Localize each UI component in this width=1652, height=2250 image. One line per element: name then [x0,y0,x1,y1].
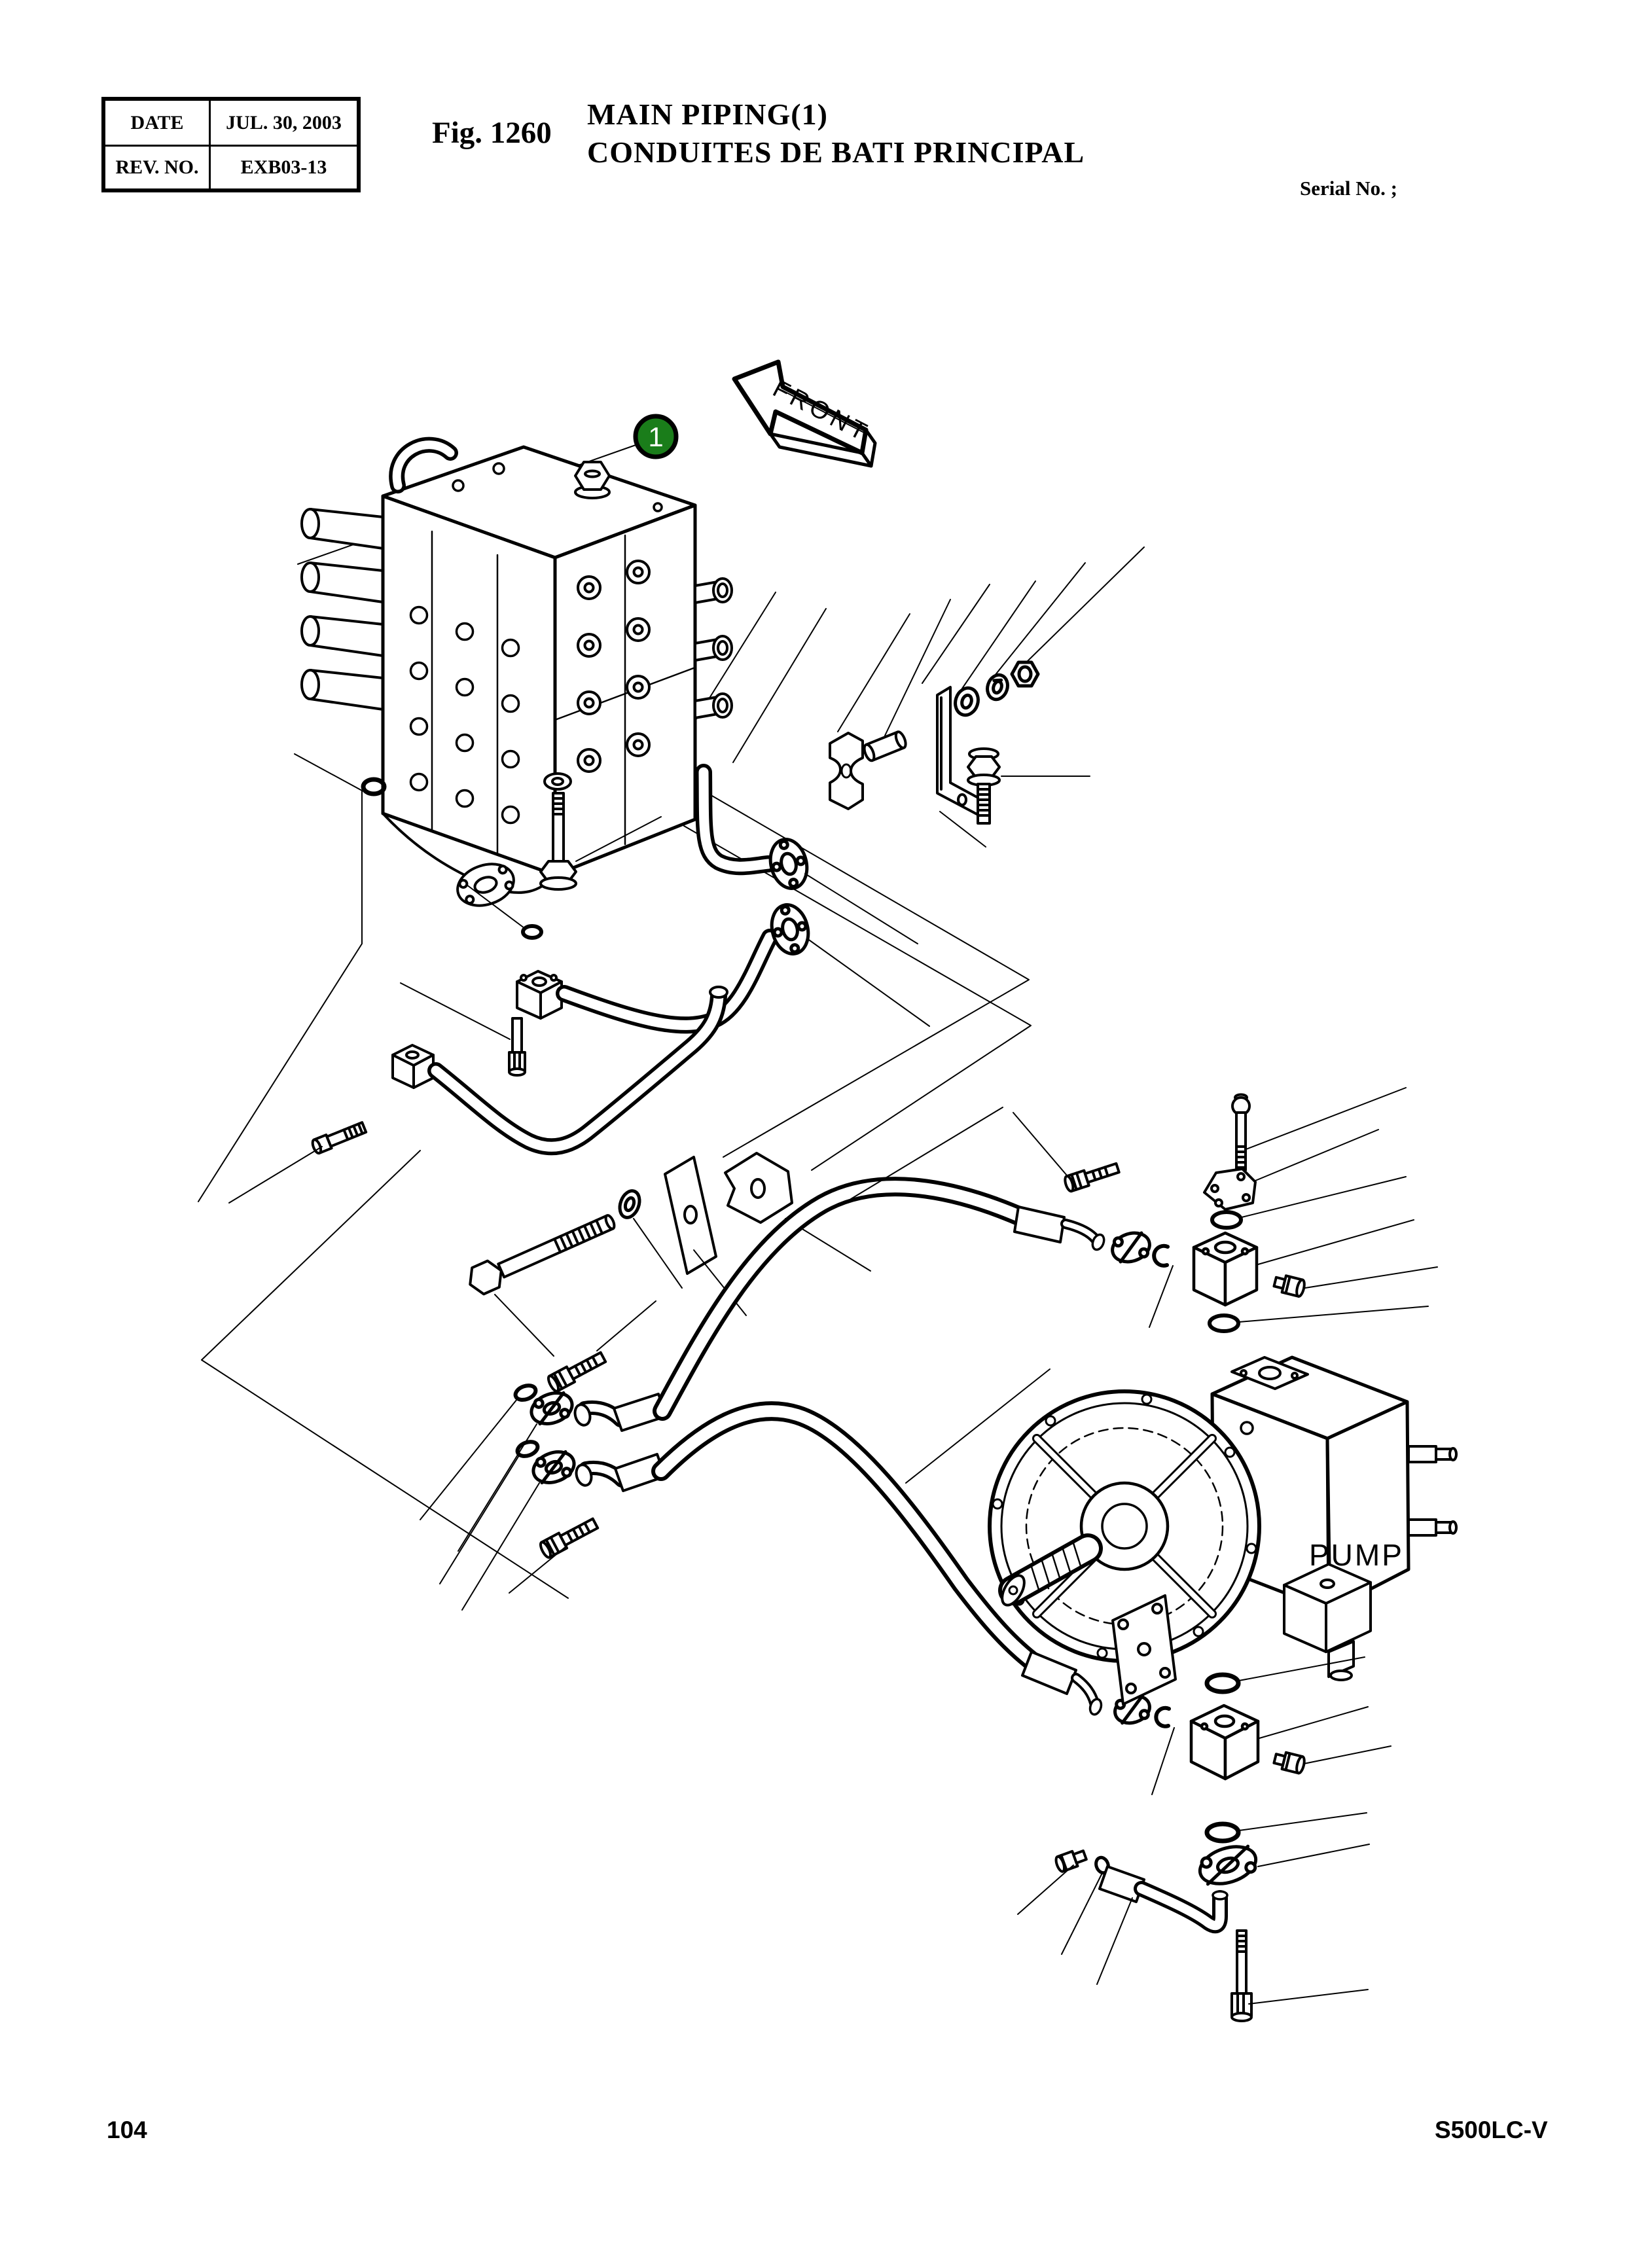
callout-1-badge: 1 [636,416,676,457]
valve-spool-bosses [302,509,383,709]
washer [545,774,571,789]
tube-flange-1 [766,836,812,893]
plug [1273,1750,1306,1774]
clamp-block [725,1153,792,1223]
flange-block [393,1045,433,1088]
o-ring [1212,1212,1241,1228]
left-flange-block-assembly [229,1045,433,1203]
washer [617,1188,643,1220]
hose-ferrule [1022,1652,1076,1694]
plug [1054,1848,1087,1872]
pump-side-pins [1409,1446,1456,1535]
main-control-valve [302,445,732,912]
valve-bottom-flange [452,857,519,912]
flange-cover [1204,1169,1255,1209]
valve-top-plug [575,462,609,498]
washer [952,685,981,718]
socket-bolt [547,1349,607,1393]
tube-flange-2 [767,901,814,958]
pump-regulator-block [1284,1564,1371,1680]
model-code: S500LC-V [1435,2116,1548,2144]
exploded-parts-diagram: 1 FRONT [0,0,1652,2250]
callout-1-number: 1 [648,421,663,452]
valve-body [383,447,695,875]
front-arrow: FRONT [734,362,875,466]
hex-bolt-long [464,1207,619,1297]
clamp-plate-group [464,1153,871,1356]
manual-page: DATE JUL. 30, 2003 REV. NO. EXB03-13 Fig… [0,0,1652,2250]
hose-ferrule [1015,1207,1064,1242]
plug [1273,1274,1306,1297]
tube-b [564,937,770,1025]
leader-lines [1018,1657,1391,2004]
lock-washer [984,672,1011,702]
o-ring [523,926,541,938]
bracket-hardware-group [830,547,1144,847]
long-socket-bolt [1232,1095,1249,1171]
clamp-half [830,733,863,809]
cube-block [1194,1233,1257,1305]
elbow-fitting [573,1394,666,1431]
snap-ring [1154,1246,1168,1266]
flange-block [517,971,562,1018]
hex-nut [1012,662,1038,686]
snap-ring [1156,1708,1169,1726]
o-ring [1207,1675,1238,1692]
tube-flange-block-assembly [401,885,562,1075]
split-flange [1195,1840,1261,1891]
pump-port-block-lower [1018,1657,1391,2021]
socket-bolt [539,1516,600,1559]
cube-block [1191,1705,1258,1779]
clamp-plate [665,1157,716,1274]
valve-side-fittings [695,579,732,718]
hose-1 [662,1187,1025,1411]
o-ring [1207,1824,1238,1841]
pump-label: PUMP [1309,1538,1404,1572]
long-socket-bolt [1232,1931,1251,2021]
pump-assembly: PUMP [990,1357,1456,1704]
hex-bolt [311,1120,367,1154]
o-ring [1210,1315,1238,1331]
pump-port-block-upper [1013,1088,1437,1331]
socket-bolt [1064,1160,1120,1192]
o-ring [363,779,384,794]
split-flange [1109,1228,1153,1266]
socket-bolt [509,1018,525,1075]
page-number: 104 [107,2116,147,2144]
